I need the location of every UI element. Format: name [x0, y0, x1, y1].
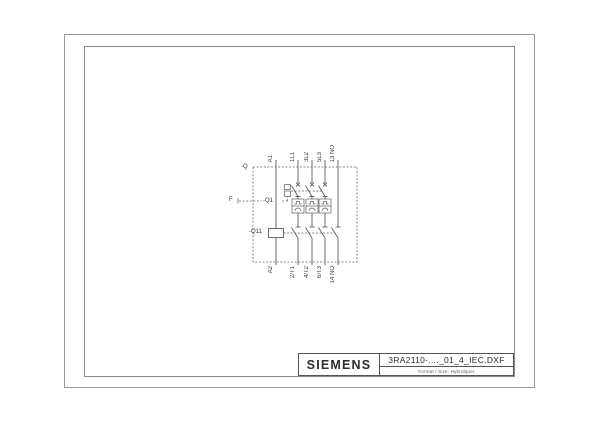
- contactor-aux-contact: [332, 227, 341, 238]
- terminal-6t3: 6/T3: [317, 266, 324, 278]
- enclosure-dashed-box: [253, 167, 357, 262]
- release-label: F: [229, 197, 233, 204]
- contactor-coil: [269, 229, 284, 238]
- title-block: SIEMENS 3RA2110-...._01_4_IEC.DXF Format…: [298, 353, 514, 376]
- terminal-5l3: 5L3: [317, 152, 324, 162]
- drawing-number: 3RA2110-...._01_4_IEC.DXF: [380, 354, 513, 367]
- terminal-14no: 14 NO: [330, 266, 337, 283]
- contactor-contact-1: [292, 227, 301, 238]
- outer-frame: [65, 35, 535, 388]
- contactor-contact-2: [306, 227, 315, 238]
- format-note: Format / Size: Hybridquer: [380, 367, 513, 375]
- terminal-2t1: 2/T1: [290, 266, 297, 278]
- terminal-1l1: 1L1: [290, 152, 297, 162]
- terminal-a2: A2: [268, 266, 275, 273]
- terminal-4t2: 4/T2: [304, 266, 311, 278]
- contactor-contact-3: [319, 227, 328, 238]
- contactor-label: -Q11: [249, 229, 262, 236]
- release-block-pole3: [319, 199, 331, 213]
- breaker-contact-pole1: [292, 183, 301, 197]
- release-block-pole2: [306, 199, 318, 213]
- breaker-contact-pole3: [319, 183, 328, 197]
- contactor-q11: [269, 227, 341, 238]
- brand-logo: SIEMENS: [299, 354, 380, 375]
- breaker-label: -Q1: [263, 198, 273, 205]
- breaker-contact-pole2: [306, 183, 315, 197]
- terminal-13no: 13 NO: [330, 145, 337, 162]
- title-block-right: 3RA2110-...._01_4_IEC.DXF Format / Size:…: [380, 354, 513, 375]
- wires: [276, 160, 338, 265]
- drawing-canvas: -Q F -Q1 -Q11 A1 1L1 3L2 5L3 13 NO A2 2/…: [0, 0, 600, 424]
- breaker-q1: [285, 183, 332, 214]
- terminal-3l2: 3L2: [304, 152, 311, 162]
- release-block-pole1: [292, 199, 304, 213]
- terminal-a1: A1: [268, 155, 275, 162]
- inner-frame: [85, 47, 515, 377]
- enclosure-label: -Q: [241, 164, 248, 171]
